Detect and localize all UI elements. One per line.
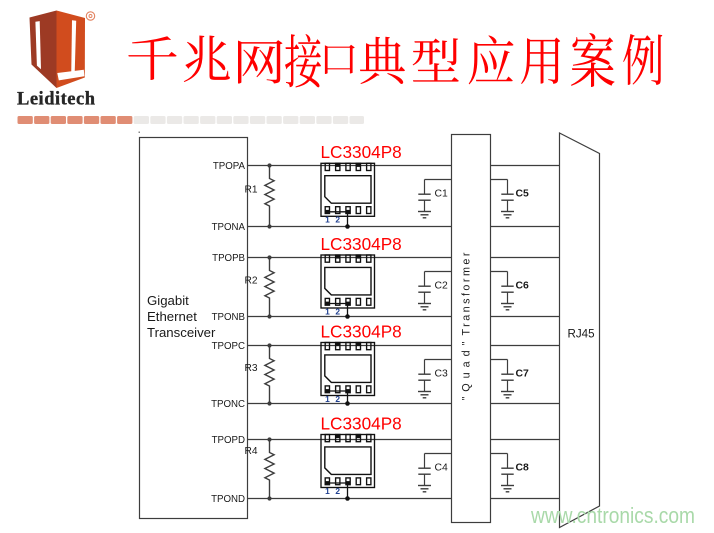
svg-text:R1: R1 xyxy=(244,185,257,196)
svg-text:TPOPB: TPOPB xyxy=(212,253,245,264)
svg-text:2: 2 xyxy=(335,486,340,496)
svg-text:RJ45: RJ45 xyxy=(568,328,595,341)
svg-text:LC3304P8: LC3304P8 xyxy=(321,413,402,433)
svg-text:TPONC: TPONC xyxy=(211,399,245,410)
svg-text:C4: C4 xyxy=(435,462,449,473)
svg-text:LC3304P8: LC3304P8 xyxy=(321,234,402,254)
svg-text:C3: C3 xyxy=(435,368,449,379)
svg-text:Ethernet: Ethernet xyxy=(147,309,197,324)
svg-text:TPOPC: TPOPC xyxy=(212,341,245,352)
svg-text:Leiditech: Leiditech xyxy=(17,90,96,110)
svg-text:Gigabit: Gigabit xyxy=(147,293,189,308)
svg-text:1: 1 xyxy=(325,215,330,225)
svg-text:C1: C1 xyxy=(435,188,449,199)
svg-text:TPOPA: TPOPA xyxy=(213,161,246,172)
svg-text:2: 2 xyxy=(335,215,340,225)
svg-text:TPOPD: TPOPD xyxy=(212,435,245,446)
svg-text:C6: C6 xyxy=(516,280,530,291)
svg-text:C2: C2 xyxy=(435,280,449,291)
svg-text:2: 2 xyxy=(335,306,340,316)
svg-text:www.cntronics.com: www.cntronics.com xyxy=(530,503,695,528)
svg-text:1: 1 xyxy=(325,394,330,404)
svg-text:C8: C8 xyxy=(516,462,530,473)
svg-text:TPONB: TPONB xyxy=(212,312,245,323)
svg-text:LC3304P8: LC3304P8 xyxy=(321,142,402,162)
svg-text:1: 1 xyxy=(325,306,330,316)
svg-text:R4: R4 xyxy=(244,446,257,457)
svg-text:LC3304P8: LC3304P8 xyxy=(321,321,402,341)
svg-text:2: 2 xyxy=(335,394,340,404)
svg-text:TPOND: TPOND xyxy=(211,494,245,505)
svg-text:R3: R3 xyxy=(244,363,257,374)
svg-text:R2: R2 xyxy=(244,276,257,287)
svg-text:C5: C5 xyxy=(516,188,530,199)
svg-text:TPONA: TPONA xyxy=(212,222,246,233)
svg-text:1: 1 xyxy=(325,486,330,496)
svg-text:C7: C7 xyxy=(516,368,530,379)
svg-text:Transceiver: Transceiver xyxy=(147,325,216,340)
